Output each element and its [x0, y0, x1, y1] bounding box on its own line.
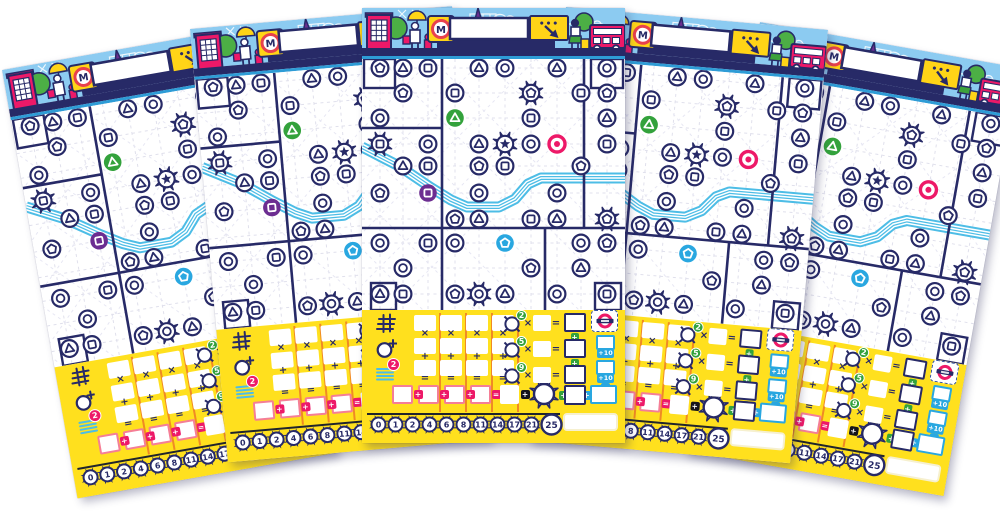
station-square-normal[interactable] — [252, 74, 270, 92]
station-triangle-normal[interactable] — [303, 69, 321, 87]
svg-text:2: 2 — [409, 421, 415, 430]
station-square-normal[interactable] — [686, 168, 704, 186]
station-circle-normal[interactable] — [471, 185, 488, 202]
station-square-normal[interactable] — [599, 286, 616, 303]
station-square-normal[interactable] — [827, 112, 846, 131]
station-circle-normal[interactable] — [981, 114, 1000, 133]
station-triangle-normal[interactable] — [471, 136, 488, 153]
underground-roundel-icon — [596, 312, 614, 330]
bonus-tag: +10 — [770, 367, 788, 377]
metro-sign-label: M — [828, 51, 840, 64]
station-square-normal[interactable] — [281, 96, 299, 114]
station-square-normal[interactable] — [68, 108, 87, 127]
station-pentagon-special[interactable] — [170, 111, 197, 138]
station-triangle-green[interactable] — [102, 152, 122, 172]
station-square-normal[interactable] — [789, 155, 807, 173]
bonus-tag: +10 — [597, 374, 614, 383]
station-circle-normal[interactable] — [294, 246, 312, 264]
station-triangle-normal[interactable] — [921, 306, 940, 325]
interchange-total-box[interactable] — [739, 328, 763, 349]
bonus-total-box[interactable] — [916, 433, 946, 456]
station-triangle-normal[interactable] — [746, 75, 764, 93]
station-pentagon-blue[interactable] — [173, 266, 193, 286]
station-pentagon-normal[interactable] — [631, 216, 649, 234]
multiply-operator: × — [523, 371, 533, 381]
station-triangle-green[interactable] — [283, 121, 302, 140]
station-pentagon-normal[interactable] — [298, 297, 316, 315]
objective-card-slot — [766, 328, 795, 352]
station-pentagon-normal[interactable] — [311, 167, 329, 185]
equals-operator: = — [471, 374, 483, 384]
station-circle-normal[interactable] — [447, 235, 464, 252]
station-pentagon-normal[interactable] — [292, 222, 310, 240]
station-circle-normal[interactable] — [549, 286, 566, 303]
station-circle-normal[interactable] — [573, 235, 590, 252]
station-triangle-green[interactable] — [640, 115, 659, 134]
equals-operator: = — [881, 412, 893, 424]
districts-map-icon — [68, 363, 93, 388]
station-triangle-normal[interactable] — [668, 68, 686, 86]
interchange-total-box[interactable] — [734, 380, 758, 401]
station-triangle-normal[interactable] — [316, 220, 334, 238]
station-triangle-normal[interactable] — [733, 225, 751, 243]
station-circle-special[interactable] — [319, 291, 344, 316]
station-square-normal[interactable] — [337, 165, 355, 183]
station-circle-pink[interactable] — [549, 136, 565, 152]
station-triangle-normal[interactable] — [662, 144, 680, 162]
station-pentagon-blue[interactable] — [343, 241, 362, 260]
station-square-normal[interactable] — [642, 91, 660, 109]
station-triangle-normal[interactable] — [118, 99, 137, 118]
station-triangle-normal[interactable] — [497, 286, 514, 303]
station-circle-normal[interactable] — [893, 328, 912, 347]
station-triangle-green[interactable] — [822, 136, 842, 156]
station-circle-normal[interactable] — [29, 165, 48, 184]
station-triangle-normal[interactable] — [372, 286, 389, 303]
objective-card-slot — [591, 310, 618, 332]
svg-text:11: 11 — [474, 421, 486, 430]
equals-operator: = — [726, 333, 737, 344]
objective-box[interactable] — [596, 335, 615, 350]
score-panel: 2×+=×+=×+=×+=+++=+++2×=+5×=+9×=++10+10=0… — [362, 310, 625, 443]
connector-plus: + — [794, 416, 804, 426]
interchange-total-box[interactable] — [737, 354, 761, 375]
station-triangle-normal[interactable] — [752, 276, 770, 294]
bonus-tag: +10 — [597, 349, 614, 358]
districts-map-icon — [229, 329, 253, 353]
final-score-box[interactable] — [729, 428, 785, 451]
svg-text:1: 1 — [392, 421, 398, 430]
station-circle-normal[interactable] — [497, 60, 514, 77]
svg-text:25: 25 — [545, 421, 558, 431]
station-square-normal[interactable] — [573, 85, 590, 102]
station-circle-normal[interactable] — [81, 183, 100, 202]
bonus-total-box[interactable] — [759, 402, 788, 423]
station-square-normal[interactable] — [768, 102, 786, 120]
score-track-item[interactable]: 25 — [704, 424, 733, 453]
station-circle-normal[interactable] — [372, 235, 389, 252]
name-plate-field[interactable] — [450, 18, 528, 39]
metro-sign-label: M — [436, 25, 446, 36]
station-pentagon-normal[interactable] — [372, 185, 389, 202]
districts-map-icon — [375, 312, 397, 334]
station-pentagon-normal[interactable] — [780, 253, 798, 271]
station-circle-special[interactable] — [812, 311, 839, 338]
bus-icon — [590, 25, 625, 52]
station-circle-normal[interactable] — [755, 251, 773, 269]
station-triangle-normal[interactable] — [183, 317, 202, 336]
station-pentagon-normal[interactable] — [951, 286, 970, 305]
station-triangle-normal[interactable] — [573, 260, 590, 277]
station-square-normal[interactable] — [716, 122, 734, 140]
station-circle-normal[interactable] — [329, 67, 347, 85]
station-triangle-normal[interactable] — [227, 76, 245, 94]
station-pentagon-normal[interactable] — [229, 101, 247, 119]
station-circle-normal[interactable] — [420, 136, 437, 153]
station-pentagon-special[interactable] — [519, 81, 542, 104]
station-triangle-normal[interactable] — [549, 60, 566, 77]
station-pentagon-normal[interactable] — [372, 60, 389, 77]
equals-operator: = — [551, 371, 561, 381]
equals-operator: = — [722, 385, 733, 396]
station-circle-normal[interactable] — [78, 309, 97, 328]
station-circle-normal[interactable] — [125, 276, 144, 295]
station-square-normal[interactable] — [497, 158, 514, 175]
connector-plus: + — [635, 397, 645, 407]
station-square-normal[interactable] — [523, 110, 540, 127]
station-square-normal[interactable] — [420, 60, 437, 77]
underground-roundel-icon — [934, 362, 955, 383]
connector-plus: + — [170, 427, 180, 437]
speech-bubble: ••• — [731, 30, 771, 57]
metro-sign-label: M — [78, 72, 90, 85]
interchange-count-box[interactable] — [533, 315, 551, 331]
station-circle-normal[interactable] — [51, 289, 70, 308]
station-triangle-normal[interactable] — [549, 211, 566, 228]
station-triangle-normal[interactable] — [972, 163, 991, 182]
svg-text:21: 21 — [525, 421, 537, 430]
bonus-tag: +10 — [767, 392, 785, 402]
station-triangle-green[interactable] — [446, 109, 464, 127]
station-triangle-normal[interactable] — [655, 218, 673, 236]
station-square-normal[interactable] — [447, 85, 464, 102]
station-star-special[interactable] — [493, 132, 516, 155]
player-sheet-3: M ••• — [362, 8, 625, 443]
station-triangle-normal[interactable] — [236, 174, 254, 192]
interchange-total-box[interactable] — [903, 357, 928, 380]
station-square-normal[interactable] — [942, 336, 961, 355]
svg-text:11: 11 — [641, 428, 653, 438]
equals-operator: = — [419, 374, 431, 384]
interchange-count-box[interactable] — [704, 380, 723, 398]
interchange-grand-box[interactable] — [733, 400, 757, 422]
equals-operator: = — [642, 381, 655, 392]
objective-card-slot — [929, 359, 959, 385]
station-circle-normal[interactable] — [599, 60, 616, 77]
station-square-normal[interactable] — [599, 136, 616, 153]
interchange-total-box[interactable] — [564, 365, 586, 384]
metro-sign-label: M — [637, 30, 648, 42]
scene: M ••• — [0, 0, 1000, 511]
station-pentagon-normal[interactable] — [523, 260, 540, 277]
station-pencil-icon — [375, 337, 397, 359]
station-circle-normal[interactable] — [395, 260, 412, 277]
connector-plus: + — [440, 390, 449, 399]
interchange-count-box[interactable] — [708, 328, 727, 346]
station-triangle-normal[interactable] — [674, 295, 692, 313]
station-pentagon-blue[interactable] — [678, 244, 697, 263]
interchange-count-box[interactable] — [706, 354, 725, 372]
connector-plus: + — [145, 431, 155, 441]
station-circle-special[interactable] — [467, 282, 490, 305]
station-pentagon-normal[interactable] — [471, 158, 488, 175]
station-triangle-normal[interactable] — [309, 145, 327, 163]
station-pentagon-normal[interactable] — [761, 174, 779, 192]
equals-operator: = — [305, 385, 318, 396]
station-pentagon-normal[interactable] — [703, 272, 721, 290]
connector-plus: + — [466, 390, 475, 399]
svg-text:25: 25 — [867, 460, 881, 472]
connector-plus: + — [275, 404, 285, 414]
line-total-box[interactable] — [392, 385, 413, 404]
station-circle-normal[interactable] — [219, 252, 237, 270]
station-triangle-normal[interactable] — [224, 303, 242, 321]
station-triangle-normal[interactable] — [599, 110, 616, 127]
station-square-normal[interactable] — [864, 193, 883, 212]
multiply-operator: × — [523, 345, 533, 355]
station-pentagon-special[interactable] — [898, 122, 925, 149]
station-triangle-normal[interactable] — [471, 60, 488, 77]
station-pentagon-normal[interactable] — [447, 286, 464, 303]
station-circle-normal[interactable] — [182, 165, 201, 184]
station-square-normal[interactable] — [267, 248, 285, 266]
station-triangle-normal[interactable] — [791, 129, 809, 147]
equals-operator: = — [330, 383, 343, 394]
station-triangle-normal[interactable] — [395, 60, 412, 77]
speech-bubble: ••• — [920, 59, 962, 89]
station-circle-normal[interactable] — [726, 300, 744, 318]
station-pentagon-special[interactable] — [714, 94, 739, 119]
svg-text:0: 0 — [375, 421, 381, 430]
interchange-grand-box[interactable] — [890, 428, 915, 452]
station-pentagon-normal[interactable] — [395, 85, 412, 102]
station-square-normal[interactable] — [951, 134, 970, 153]
objective-box[interactable] — [596, 360, 615, 375]
station-pentagon-blue[interactable] — [850, 268, 870, 288]
station-circle-normal[interactable] — [314, 194, 332, 212]
station-pentagon-normal[interactable] — [660, 165, 678, 183]
station-circle-normal[interactable] — [925, 282, 944, 301]
station-circle-normal[interactable] — [144, 95, 163, 114]
station-pentagon-normal[interactable] — [134, 326, 153, 345]
station-circle-normal[interactable] — [549, 185, 566, 202]
svg-text:17: 17 — [675, 431, 687, 441]
station-pentagon-normal[interactable] — [599, 235, 616, 252]
multiply-operator: × — [523, 319, 533, 329]
station-pentagon-normal[interactable] — [625, 291, 643, 309]
line-total-box[interactable] — [97, 432, 121, 454]
station-pentagon-blue[interactable] — [496, 234, 514, 252]
interchange-grand-box[interactable] — [564, 385, 586, 405]
station-square-normal[interactable] — [98, 280, 117, 299]
connector-plus: + — [119, 436, 129, 446]
station-circle-special[interactable] — [153, 318, 180, 345]
station-circle-pink[interactable] — [740, 151, 757, 168]
line-total-box[interactable] — [253, 400, 276, 421]
svg-text:8: 8 — [460, 421, 466, 430]
interchange-total-box[interactable] — [564, 313, 586, 332]
svg-text:2: 2 — [273, 435, 279, 444]
svg-text:17: 17 — [508, 421, 519, 430]
river-crossings-badge: 2 — [245, 374, 259, 388]
station-star-special[interactable] — [153, 166, 180, 193]
score-track-item[interactable]: 25 — [538, 411, 565, 438]
svg-text:6: 6 — [443, 421, 449, 430]
interchange-total-box[interactable] — [894, 409, 919, 432]
station-circle-normal[interactable] — [713, 148, 731, 166]
river — [362, 147, 625, 207]
svg-text:11: 11 — [338, 429, 350, 439]
station-circle-normal[interactable] — [259, 150, 277, 168]
station-triangle-normal[interactable] — [471, 211, 488, 228]
connector-plus: + — [414, 390, 423, 399]
station-pentagon-normal[interactable] — [447, 211, 464, 228]
station-circle-pink[interactable] — [919, 181, 938, 200]
equals-operator: = — [279, 388, 292, 399]
station-triangle-normal[interactable] — [841, 319, 860, 338]
station-square-normal[interactable] — [395, 286, 412, 303]
station-square-normal[interactable] — [968, 189, 987, 208]
station-circle-normal[interactable] — [694, 70, 712, 88]
station-circle-normal[interactable] — [208, 128, 226, 146]
sheet-header: M ••• — [362, 8, 625, 59]
header-bar — [362, 48, 625, 56]
station-square-normal[interactable] — [161, 191, 180, 210]
equals-operator: = — [445, 374, 457, 384]
svg-text:14: 14 — [491, 421, 503, 430]
station-pentagon-normal[interactable] — [47, 137, 66, 156]
connector-plus: + — [300, 402, 310, 412]
station-circle-normal[interactable] — [881, 96, 900, 115]
interchange-count-box[interactable] — [533, 367, 551, 383]
station-square-normal[interactable] — [420, 158, 437, 175]
equals-operator: = — [551, 319, 561, 329]
svg-text:14: 14 — [658, 429, 670, 439]
svg-text:17: 17 — [831, 454, 844, 465]
station-pentagon-normal[interactable] — [573, 158, 590, 175]
station-circle-normal[interactable] — [833, 215, 852, 234]
final-score-box[interactable] — [563, 413, 618, 431]
station-triangle-normal[interactable] — [932, 105, 951, 124]
station-star-special[interactable] — [864, 167, 891, 194]
station-triangle-normal[interactable] — [131, 174, 150, 193]
station-pentagon-normal[interactable] — [872, 298, 891, 317]
metro-sign-label: M — [265, 38, 276, 50]
station-circle-normal[interactable] — [629, 240, 647, 258]
equals-operator: = — [551, 345, 561, 355]
station-square-normal[interactable] — [776, 304, 794, 322]
station-circle-normal[interactable] — [372, 110, 389, 127]
interchange-count-box[interactable] — [533, 341, 551, 357]
station-map — [362, 59, 625, 310]
station-square-normal[interactable] — [99, 128, 118, 147]
svg-text:4: 4 — [426, 421, 432, 430]
bubble-dots: ••• — [539, 20, 559, 30]
station-circle-normal[interactable] — [657, 192, 675, 210]
station-circle-special[interactable] — [645, 290, 670, 315]
bonus-total-box[interactable] — [590, 385, 617, 404]
river-crossings-badge: 2 — [387, 358, 400, 371]
connector-plus: + — [326, 400, 336, 410]
phone-booth-icon — [366, 13, 393, 53]
station-circle-normal[interactable] — [244, 275, 262, 293]
station-circle-normal[interactable] — [140, 222, 159, 241]
station-pentagon-normal[interactable] — [42, 239, 61, 258]
speech-bubble: ••• — [530, 16, 568, 40]
station-square-normal[interactable] — [85, 204, 104, 223]
station-circle-normal[interactable] — [796, 79, 814, 97]
station-pentagon-normal[interactable] — [204, 78, 222, 96]
station-square-normal[interactable] — [260, 172, 278, 190]
station-pentagon-normal[interactable] — [838, 188, 857, 207]
interchange-total-box[interactable] — [564, 339, 586, 358]
station-square-purple[interactable] — [419, 184, 437, 202]
svg-text:25: 25 — [712, 434, 725, 445]
underground-roundel-icon — [771, 330, 791, 350]
station-circle-normal[interactable] — [735, 199, 753, 217]
station-square-normal[interactable] — [707, 223, 725, 241]
station-triangle-normal[interactable] — [395, 158, 412, 175]
equals-operator: = — [724, 359, 735, 370]
station-square-normal[interactable] — [420, 235, 437, 252]
station-pentagon-normal[interactable] — [794, 104, 812, 122]
station-pentagon-normal[interactable] — [215, 203, 233, 221]
equals-operator: = — [890, 361, 902, 373]
station-circle-normal[interactable] — [910, 228, 929, 247]
equals-operator: = — [886, 387, 898, 399]
equals-operator: = — [802, 401, 816, 413]
interchange-total-box[interactable] — [898, 383, 923, 406]
svg-text:21: 21 — [692, 432, 704, 442]
station-square-normal[interactable] — [247, 301, 265, 319]
station-circle-normal[interactable] — [523, 136, 540, 153]
station-pentagon-normal[interactable] — [599, 85, 616, 102]
final-score-box[interactable] — [884, 456, 941, 483]
station-square-normal[interactable] — [523, 211, 540, 228]
lines-subtotal-box[interactable] — [500, 385, 519, 404]
